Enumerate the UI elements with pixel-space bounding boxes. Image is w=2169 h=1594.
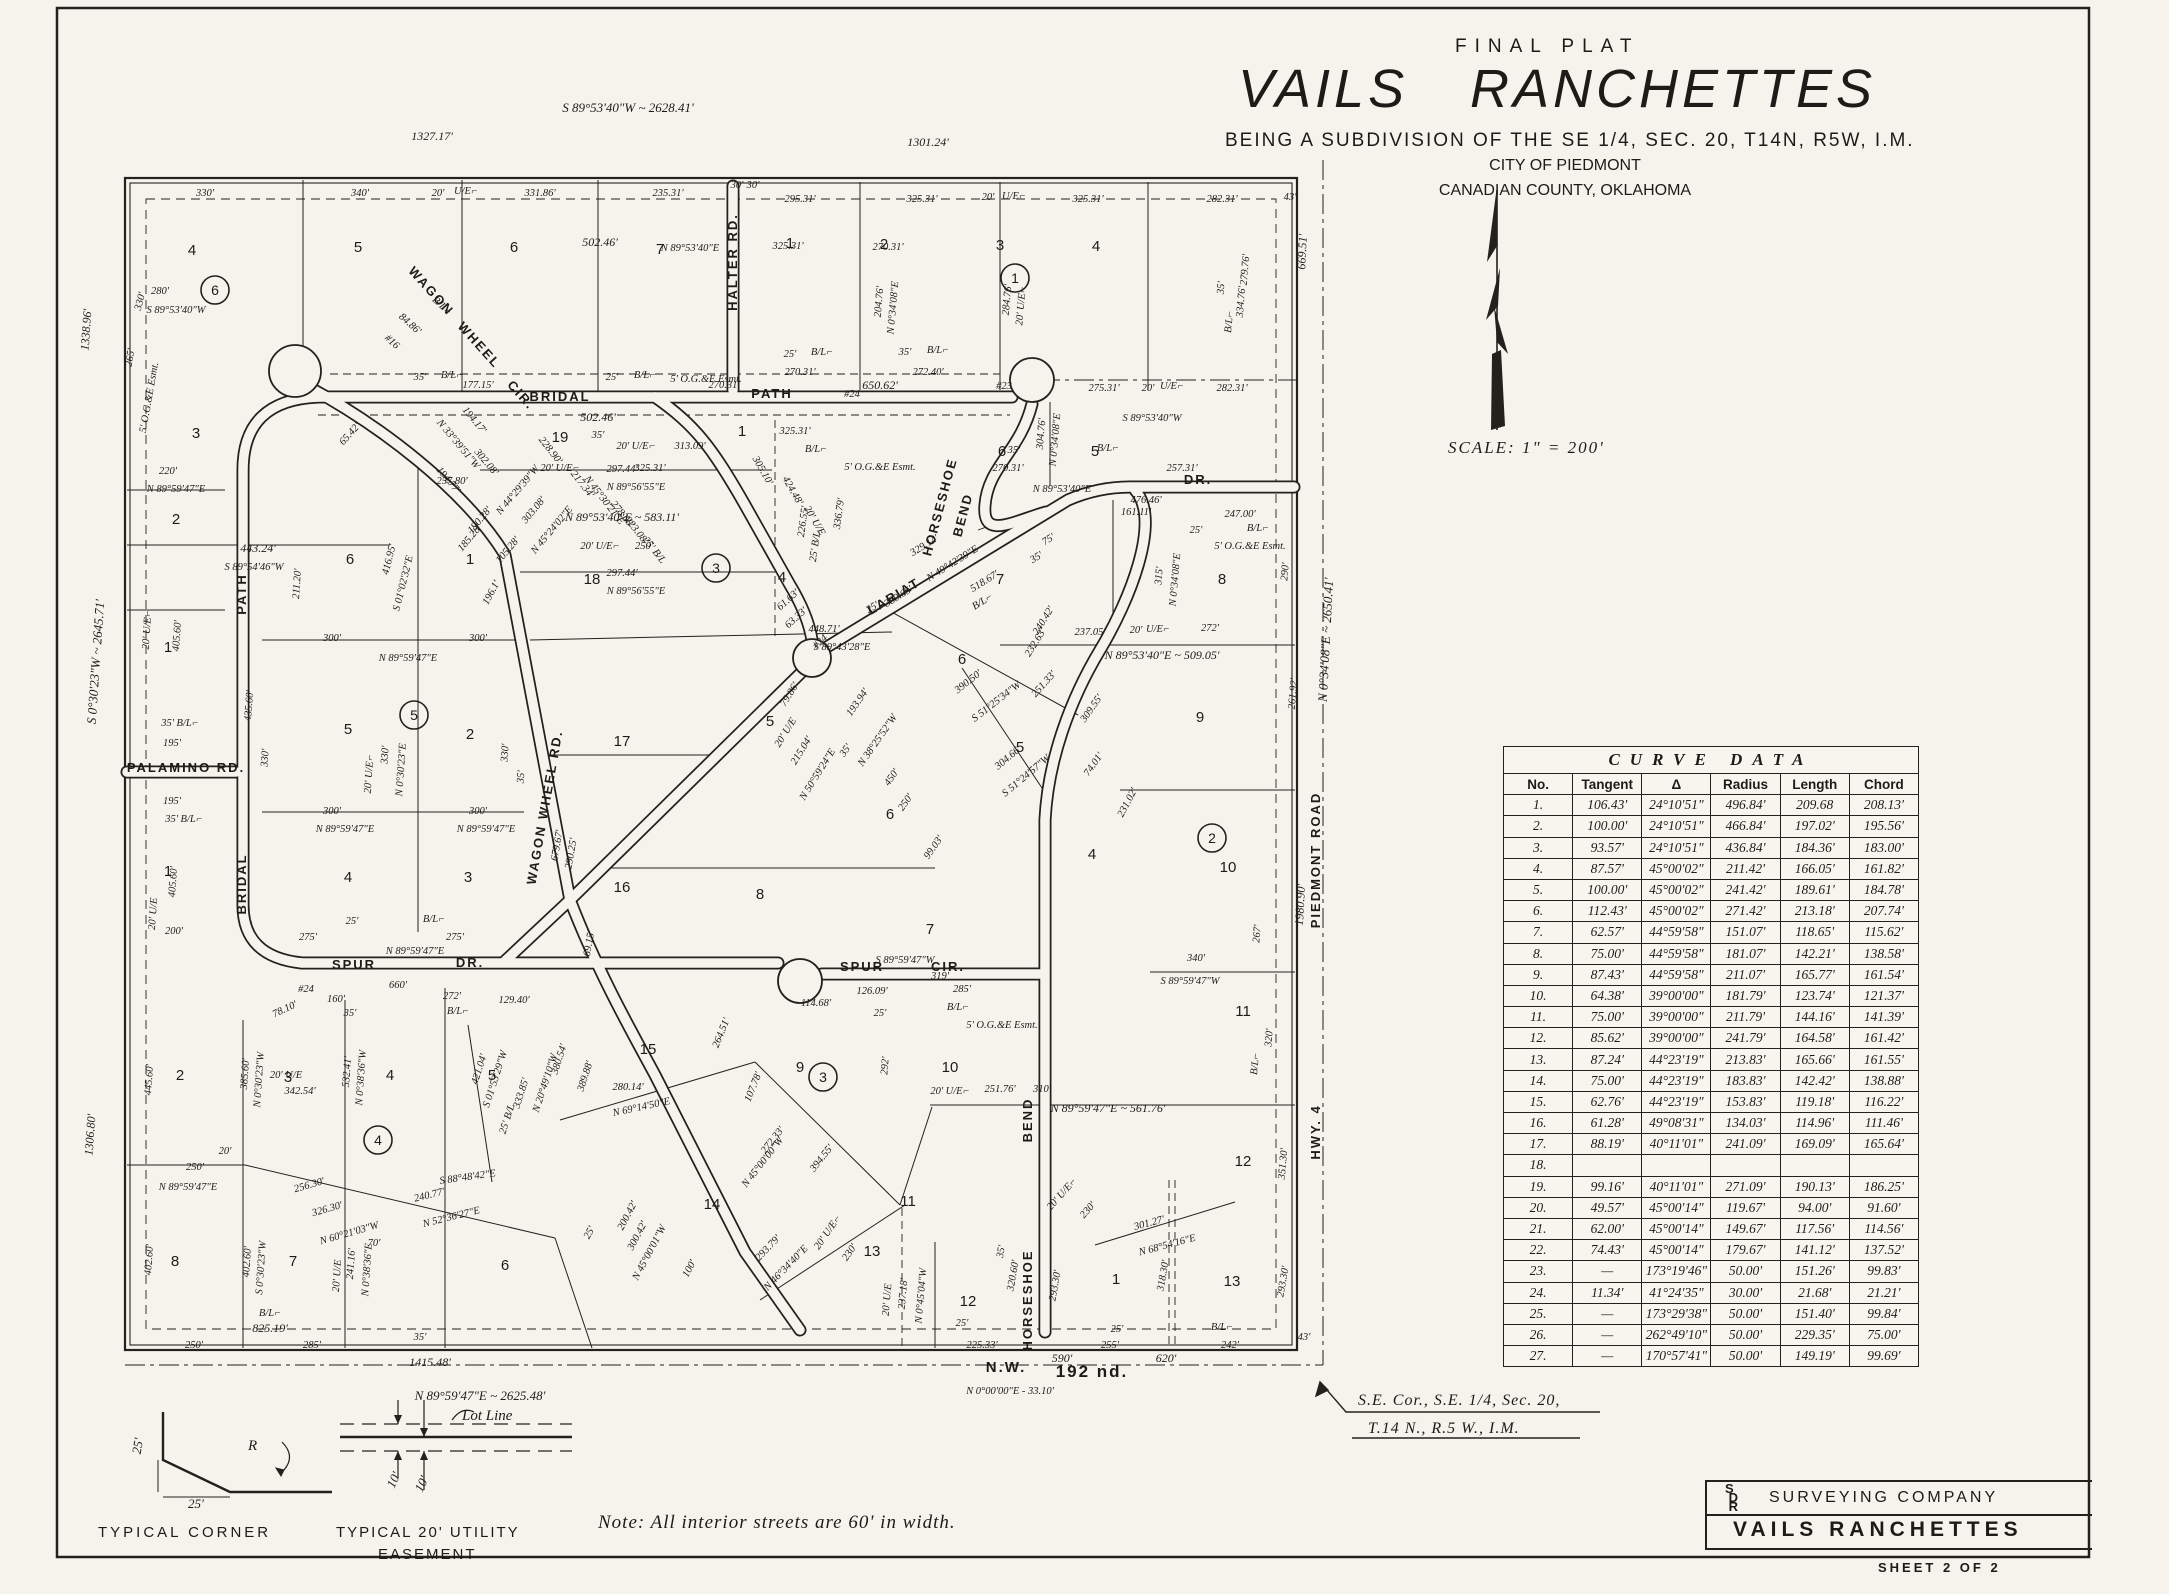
- dimension-label: S 89°59'47"W: [876, 955, 936, 966]
- dimension-label: 195': [163, 738, 182, 749]
- dimension-label: 1327.17': [411, 129, 453, 143]
- dimension-label: S 89°54'46"W: [225, 562, 285, 573]
- dimension-label: N 89°59'47"E ~ 2625.48': [414, 1388, 546, 1403]
- curve-table-row: 15.62.76'44°23'19"153.83'119.18'116.22': [1504, 1091, 1919, 1112]
- street-label: BRIDAL: [529, 389, 590, 404]
- curve-table-row: 8.75.00'44°59'58"181.07'142.21'138.58': [1504, 943, 1919, 964]
- corner-dim-25-vertical: 25': [129, 1437, 147, 1455]
- dimension-label: B/L⌐: [805, 444, 827, 455]
- dimension-label: 402.60': [241, 1245, 254, 1278]
- dimension-label: 35': [413, 1332, 428, 1343]
- dimension-label: 237.18': [897, 1277, 911, 1310]
- dimension-label: 250': [635, 541, 654, 552]
- dimension-label: 300': [468, 806, 488, 817]
- plat-subtitle-2: CITY OF PIEDMONT: [1245, 157, 1885, 175]
- dimension-label: 250': [186, 1162, 205, 1173]
- dimension-label: N 68°54'16"E: [1137, 1233, 1198, 1259]
- corner-dim-25-horizontal: 25': [188, 1496, 204, 1512]
- dimension-label: 235.31': [652, 188, 684, 199]
- dimension-label: 301.27': [1132, 1214, 1167, 1233]
- dimension-label: 215.04': [789, 734, 815, 767]
- dimension-label: 225.33': [966, 1340, 998, 1351]
- dimension-label: N 89°59'47"E: [385, 946, 445, 957]
- dimension-label: 5' O.G.&E Esmt.: [1214, 541, 1285, 552]
- dimension-label: 282.31': [1216, 383, 1248, 394]
- dimension-label: 250': [896, 791, 916, 813]
- dimension-label: 310': [1032, 1084, 1052, 1095]
- dimension-label: 257.80': [436, 476, 468, 487]
- dimension-label: 293.79': [753, 1233, 783, 1264]
- dimension-label: N 0°45'04"W: [914, 1266, 930, 1324]
- typical-corner-diagram: [158, 1412, 332, 1497]
- dimension-label: 196.1': [481, 578, 503, 607]
- dimension-label: 107.78': [743, 1070, 765, 1104]
- typical-easement-label-1: TYPICAL 20' UTILITY: [336, 1524, 520, 1541]
- dimension-label: 35': [837, 742, 854, 760]
- curve-table-column: No.: [1504, 774, 1573, 795]
- lot-number: 8: [171, 1253, 179, 1270]
- dimension-label: 325.31': [1071, 194, 1104, 205]
- dimension-label: 351.30': [1277, 1147, 1291, 1181]
- lot-number: 4: [386, 1067, 394, 1084]
- dimension-label: 476.46': [1130, 495, 1162, 506]
- curve-table-row: 23.—173°19'46"50.00'151.26'99.83': [1504, 1261, 1919, 1282]
- dimension-label: 320': [1263, 1028, 1276, 1049]
- dimension-label: 265': [124, 347, 138, 367]
- dimension-label: 502.46': [580, 410, 616, 424]
- dimension-label: 35' B/L⌐: [160, 718, 199, 729]
- curve-table-row: 7.62.57'44°59'58"151.07'118.65'115.62': [1504, 922, 1919, 943]
- dimension-label: 313.09': [673, 441, 706, 452]
- curve-table-row: 16.61.28'49°08'31"134.03'114.96'111.46': [1504, 1113, 1919, 1134]
- lot-number: 3: [192, 425, 200, 442]
- title-block-company-row: S D R SURVEYING COMPANY: [1705, 1480, 2092, 1516]
- north-arrow: [1486, 186, 1508, 430]
- dimension-label: 35': [898, 347, 913, 358]
- lot-number: 16: [614, 879, 631, 896]
- dimension-label: 325.31': [633, 463, 666, 474]
- dimension-label: 30': [730, 180, 745, 191]
- dimension-label: 272': [443, 991, 462, 1002]
- dimension-label: B/L⌐: [811, 347, 833, 358]
- street-label: PALAMINO RD.: [127, 760, 245, 775]
- se-corner-note-line1: S.E. Cor., S.E. 1/4, Sec. 20,: [1358, 1392, 1560, 1410]
- dimension-label: N 89°59'47"E: [456, 824, 516, 835]
- dimension-label: 435.60': [243, 689, 256, 722]
- dimension-label: 251.33': [1030, 669, 1060, 700]
- dimension-label: 25': [582, 1224, 598, 1241]
- dimension-label: 295.31': [784, 194, 816, 205]
- dimension-label: 450': [882, 766, 902, 788]
- dimension-label: S 88°48'42"E: [439, 1168, 497, 1187]
- dimension-label: 330': [499, 743, 511, 763]
- dimension-label: S 01°02'32"E: [391, 554, 416, 612]
- dimension-label: N 89°59'47"E: [378, 653, 438, 664]
- lot-number: 1: [466, 551, 474, 568]
- curve-table-row: 14.75.00'44°23'19"183.83'142.42'138.88': [1504, 1070, 1919, 1091]
- dimension-label: 336.79': [832, 497, 847, 531]
- dimension-label: 35': [343, 1008, 358, 1019]
- lot-number: 11: [1235, 1003, 1251, 1020]
- dimension-label: 315': [1153, 566, 1166, 587]
- dimension-label: U/E⌐: [454, 186, 478, 197]
- lot-number: 10: [1220, 859, 1237, 876]
- lot-number: 12: [960, 1293, 977, 1310]
- dimension-label: 300': [322, 633, 342, 644]
- street-label: HORSESHOE: [1020, 1249, 1035, 1350]
- dimension-label: 303.08': [519, 494, 549, 526]
- dimension-label: 256.30': [293, 1176, 327, 1195]
- dimension-label: N 0°34'08"E ~ 2650.41': [1315, 577, 1337, 703]
- dimension-label: 385.60': [239, 1057, 252, 1091]
- lot-number: 4: [188, 242, 196, 259]
- dimension-label: 264.51': [711, 1016, 733, 1050]
- dimension-label: 650.62': [862, 378, 898, 392]
- lot-number: 10: [942, 1059, 959, 1076]
- dimension-label: 20' U/E⌐: [141, 610, 155, 650]
- dimension-label: 5' O.G.&E Esmt.: [670, 374, 741, 385]
- lot-number: 3: [464, 869, 472, 886]
- dimension-label: N 89°53'40"E ~ 509.05': [1104, 648, 1220, 662]
- dimension-label: U/E⌐: [1146, 624, 1170, 635]
- dimension-label: 220': [159, 466, 178, 477]
- block-number: 3: [819, 1069, 827, 1085]
- dimension-label: 1415.48': [409, 1355, 451, 1369]
- dimension-label: 43': [1298, 1332, 1312, 1343]
- dimension-label: 25': [1190, 525, 1204, 536]
- lot-number: 19: [552, 429, 569, 446]
- dimension-label: 75': [1040, 531, 1057, 547]
- dimension-label: 20' U/E: [331, 1259, 344, 1293]
- dimension-label: #24: [844, 389, 861, 400]
- lot-number: 7: [926, 921, 934, 938]
- dimension-label: N 38°25'52"W: [855, 712, 900, 770]
- dimension-label: 272': [1201, 623, 1220, 634]
- block-number: 6: [211, 282, 219, 298]
- lot-number: 4: [778, 569, 786, 586]
- dimension-label: 825.19': [252, 1321, 288, 1335]
- dimension-label: N 0°34'08"E: [1168, 552, 1184, 607]
- dimension-label: 5' O.G.&E Esmt.: [844, 462, 915, 473]
- curve-table-column: Δ: [1642, 774, 1711, 795]
- dimension-label: 20' U/E: [773, 716, 800, 750]
- lot-number: 5: [344, 721, 352, 738]
- se-corner-note-line2: T.14 N., R.5 W., I.M.: [1368, 1420, 1520, 1438]
- dimension-label: 204.76': [873, 285, 887, 318]
- dimension-label: 305.10': [749, 454, 775, 488]
- lot-number: 1: [786, 235, 794, 252]
- dimension-label: 35': [591, 430, 606, 441]
- street-label: WAGON: [406, 263, 458, 318]
- dimension-label: 532.41': [341, 1055, 354, 1088]
- dimension-label: 330': [259, 748, 271, 768]
- dimension-label: 284.76': [1001, 283, 1015, 316]
- lot-number: 5: [766, 713, 774, 730]
- lot-number: 7: [289, 1253, 297, 1270]
- dimension-label: 78.10': [271, 999, 300, 1020]
- lot-number: 5: [1091, 443, 1099, 460]
- plat-title-left: VAILS: [1238, 58, 1408, 120]
- dimension-label: 290.25': [563, 837, 579, 870]
- dimension-label: 226.55': [796, 505, 811, 538]
- dimension-label: #16: [382, 333, 402, 352]
- curve-table-row: 11.75.00'39°00'00"211.79'144.16'141.39': [1504, 1007, 1919, 1028]
- dimension-label: 126.09': [856, 986, 888, 997]
- dimension-label: S 89°53'40"W: [1123, 413, 1183, 424]
- dimension-label: 394.55': [807, 1142, 836, 1175]
- curve-table-row: 13.87.24'44°23'19"213.83'165.66'161.55': [1504, 1049, 1919, 1070]
- dimension-label: 161.11': [1121, 507, 1152, 518]
- dimension-label: 129.40': [498, 995, 530, 1006]
- lot-number: 6: [886, 806, 894, 823]
- dimension-label: 25': [346, 916, 360, 927]
- dimension-label: 35': [1028, 549, 1046, 566]
- lot-number: 13: [864, 1243, 881, 1260]
- dimension-label: 20' U/E⌐: [540, 463, 579, 474]
- dimension-label: 292': [879, 1056, 892, 1076]
- dimension-label: N 89°53'40"E: [660, 243, 720, 254]
- block-number: 4: [374, 1132, 382, 1148]
- dimension-label: 255': [1101, 1340, 1120, 1351]
- dimension-label: N 0°34'08"E: [886, 280, 902, 335]
- lot-number: 14: [704, 1196, 721, 1213]
- project-name: VAILS RANCHETTES: [1733, 1518, 2023, 1542]
- lot-number: 9: [796, 1059, 804, 1076]
- lot-number: 3: [996, 237, 1004, 254]
- lot-number: 4: [1088, 846, 1096, 863]
- street-label: SPUR: [332, 957, 376, 972]
- dimension-label: #24: [298, 984, 315, 995]
- dimension-label: 30': [746, 180, 761, 191]
- lot-number: 6: [510, 239, 518, 256]
- lot-number: 6: [998, 443, 1006, 460]
- dimension-label: 424.48': [780, 475, 805, 508]
- dimension-label: 297.44': [606, 568, 638, 579]
- lot-number: 2: [466, 726, 474, 743]
- curve-table-row: 2.100.00'24°10'51"466.84'197.02'195.56': [1504, 816, 1919, 837]
- dimension-label: 237.05': [1074, 627, 1106, 638]
- dimension-label: 20' U/E⌐: [580, 541, 619, 552]
- street-label: HALTER RD.: [725, 213, 740, 311]
- dimension-label: 194.17': [460, 405, 489, 436]
- dimension-label: N 0°38'36"E: [360, 1242, 375, 1297]
- curve-table-row: 12.85.62'39°00'00"241.79'164.58'161.42': [1504, 1028, 1919, 1049]
- scale-label: SCALE: 1" = 200': [1448, 438, 1605, 458]
- lot-number: 5: [354, 239, 362, 256]
- lot-number: 17: [614, 733, 631, 750]
- street-label: SPUR: [840, 959, 884, 974]
- lot-number: 9: [1196, 709, 1204, 726]
- plat-subtitle-1: BEING A SUBDIVISION OF THE SE 1/4, SEC. …: [1225, 130, 2025, 152]
- dimension-label: 405.60': [171, 619, 184, 652]
- curve-data-table: CURVE DATANo.TangentΔRadiusLengthChord1.…: [1503, 746, 1919, 1367]
- dimension-label: 240.77': [413, 1186, 447, 1204]
- lot-number: 1: [164, 639, 172, 656]
- lot-number: 11: [900, 1193, 916, 1210]
- dimension-label: 20': [1142, 383, 1156, 394]
- dimension-label: 340': [350, 188, 370, 199]
- plat-subtitle-3: CANADIAN COUNTY, OKLAHOMA: [1245, 182, 1885, 200]
- dimension-label: 25': [956, 1318, 970, 1329]
- dimension-label: 20': [432, 188, 446, 199]
- dimension-label: 293.30': [1275, 1265, 1291, 1298]
- dimension-label: 20' U/E⌐: [812, 1213, 844, 1252]
- company-name: SURVEYING COMPANY: [1769, 1489, 1998, 1507]
- dimension-label: N 89°53'40"E: [1032, 484, 1092, 495]
- dimension-label: B/L⌐: [447, 1006, 469, 1017]
- dimension-label: S 89°53'40"W: [147, 305, 207, 316]
- dimension-label: 502.46': [582, 235, 618, 249]
- dimension-label: 1338.96': [78, 308, 95, 351]
- typical-corner-label: TYPICAL CORNER: [98, 1524, 271, 1541]
- lot-number: 2: [176, 1067, 184, 1084]
- curve-table-column: Tangent: [1573, 774, 1642, 795]
- dimension-label: 669.51': [1294, 233, 1310, 270]
- lot-number: 3: [284, 1069, 292, 1086]
- dimension-label: 443.24': [240, 541, 276, 555]
- dimension-label: B/L⌐: [1223, 310, 1236, 333]
- block-number: 3: [712, 560, 720, 576]
- street-label: N.W.: [986, 1359, 1027, 1376]
- dimension-label: 261.92': [1287, 677, 1301, 710]
- dimension-label: 35' B/L⌐: [164, 814, 203, 825]
- dimension-label: 1301.24': [907, 135, 949, 149]
- curve-table-row: 5.100.00'45°00'02"241.42'189.61'184.78': [1504, 879, 1919, 900]
- curve-table-row: 25.—173°29'38"50.00'151.40'99.84': [1504, 1303, 1919, 1324]
- dimension-label: N 89°59'47"E: [315, 824, 375, 835]
- street-label: BEND: [950, 491, 976, 538]
- lot-number: 18: [584, 571, 601, 588]
- curve-table-row: 10.64.38'39°00'00"181.79'123.74'121.37': [1504, 985, 1919, 1006]
- dimension-label: 279.76': [1239, 253, 1253, 286]
- dimension-label: 342.54': [283, 1086, 316, 1097]
- dimension-label: N 89°59'47"E: [158, 1182, 218, 1193]
- dimension-label: 282.31': [1206, 194, 1238, 205]
- dimension-label: 297.44': [606, 464, 638, 475]
- block-number: 1: [1011, 270, 1019, 286]
- dimension-label: 280.14': [612, 1082, 644, 1093]
- dimension-label: 326.30': [310, 1200, 345, 1220]
- dimension-label: S 89°43'28"E: [814, 642, 871, 653]
- curve-table-column: Chord: [1849, 774, 1918, 795]
- street-label: DR.: [1184, 472, 1212, 487]
- dimension-label: 325.31': [905, 194, 938, 205]
- dimension-label: 275': [446, 932, 465, 943]
- dimension-label: 275': [299, 932, 318, 943]
- dimension-label: 1980.90': [1292, 883, 1308, 926]
- dimension-label: 211.20': [291, 568, 304, 600]
- dimension-label: 35': [516, 769, 528, 784]
- dimension-label: 20': [1130, 625, 1144, 636]
- final-plat-label: FINAL PLAT: [1455, 36, 1640, 58]
- dimension-label: 389.88': [575, 1059, 596, 1094]
- curve-table-column: Radius: [1711, 774, 1780, 795]
- title-block-project-row: VAILS RANCHETTES: [1705, 1512, 2092, 1550]
- lot-number: 6: [501, 1257, 509, 1274]
- curve-table-column: Length: [1780, 774, 1849, 795]
- dimension-label: 25' B/L: [498, 1103, 518, 1136]
- dimension-label: 195': [163, 796, 182, 807]
- lot-number: 12: [1235, 1153, 1252, 1170]
- dimension-label: 230': [840, 1241, 860, 1263]
- street-label: PATH: [751, 386, 792, 401]
- dimension-label: N 89°53'40"E ~ 583.11': [564, 510, 679, 524]
- lot-number: 5: [1016, 739, 1024, 756]
- dimension-label: B/L⌐: [441, 370, 463, 381]
- dimension-label: 20': [219, 1146, 233, 1157]
- lot-number: 7: [656, 241, 664, 258]
- dimension-label: B/L⌐: [1247, 523, 1269, 534]
- dimension-label: B/L⌐: [259, 1308, 281, 1319]
- dimension-label: B/L⌐: [1211, 1322, 1233, 1333]
- dimension-label: N 89°59'47"E: [146, 484, 206, 495]
- dimension-label: 270.31': [872, 242, 904, 253]
- surveyor-logo: S D R: [1725, 1484, 1738, 1511]
- dimension-label: 1306.80': [82, 1113, 99, 1156]
- dimension-label: 331.86': [523, 188, 556, 199]
- dimension-label: 445.60': [143, 1063, 156, 1096]
- curve-table-row: 19.99.16'40°11'01"271.09'190.13'186.25': [1504, 1176, 1919, 1197]
- dimension-label: B/L⌐: [423, 914, 445, 925]
- dimension-label: N 89°59'47"E ~ 561.76': [1050, 1101, 1166, 1115]
- dimension-label: 25' B/L: [808, 531, 823, 563]
- dimension-label: 242': [1221, 1340, 1240, 1351]
- dimension-label: 20': [982, 192, 996, 203]
- dimension-label: 330': [195, 188, 215, 199]
- lot-number: 4: [344, 869, 352, 886]
- dimension-label: 25': [784, 349, 798, 360]
- block-number: 5: [410, 707, 418, 723]
- dimension-label: 231.02': [1116, 786, 1141, 819]
- dimension-label: N 89°56'55"E: [606, 586, 666, 597]
- dimension-label: S 89°53'40"W ~ 2628.41': [562, 100, 694, 115]
- dimension-label: 160': [327, 994, 346, 1005]
- curve-table-row: 20.49.57'45°00'14"119.67'94.00'91.60': [1504, 1197, 1919, 1218]
- dimension-label: 300': [468, 633, 488, 644]
- lot-number: 13: [1224, 1273, 1241, 1290]
- curve-table-row: 9.87.43'44°59'58"211.07'165.77'161.54': [1504, 964, 1919, 985]
- sheet-number: SHEET 2 OF 2: [1878, 1560, 2001, 1575]
- dimension-label: S 89°59'47"W: [1161, 976, 1221, 987]
- dimension-label: B/L⌐: [634, 370, 656, 381]
- lot-number: 1: [164, 863, 172, 880]
- dimension-label: 247.00': [1224, 509, 1256, 520]
- dimension-label: 325.31': [778, 426, 811, 437]
- dimension-label: 272.40': [912, 367, 944, 378]
- dimension-label: 304.76': [1035, 417, 1049, 451]
- curve-table-row: 17.88.19'40°11'01"241.09'169.09'165.64': [1504, 1134, 1919, 1155]
- dimension-label: 334.76': [1235, 285, 1249, 319]
- street-label: 192 nd.: [1056, 1362, 1129, 1381]
- dimension-label: 285': [953, 984, 972, 995]
- curve-table-row: 27.—170°57'41"50.00'149.19'99.69': [1504, 1346, 1919, 1367]
- dimension-label: 177.15': [462, 380, 494, 391]
- lot-number: 4: [1092, 238, 1100, 255]
- dimension-label: B/L⌐: [947, 1002, 969, 1013]
- curve-table-row: 21.62.00'45°00'14"149.67'117.56'114.56': [1504, 1218, 1919, 1239]
- street-label: PATH: [234, 573, 249, 614]
- typical-easement-diagram: [340, 1400, 572, 1490]
- dimension-label: 340': [1186, 953, 1206, 964]
- dimension-label: N 69°14'50"E: [611, 1096, 672, 1119]
- curve-table-row: 18.: [1504, 1155, 1919, 1176]
- curve-table-row: 3.93.57'24°10'51"436.84'184.36'183.00': [1504, 837, 1919, 858]
- dimension-label: 230': [1078, 1199, 1099, 1220]
- interior-streets-note: Note: All interior streets are 60' in wi…: [598, 1512, 956, 1534]
- dimension-label: 232.63': [1023, 626, 1049, 659]
- dimension-label: 35': [995, 1244, 1008, 1260]
- street-label: HWY. 4: [1308, 1104, 1323, 1159]
